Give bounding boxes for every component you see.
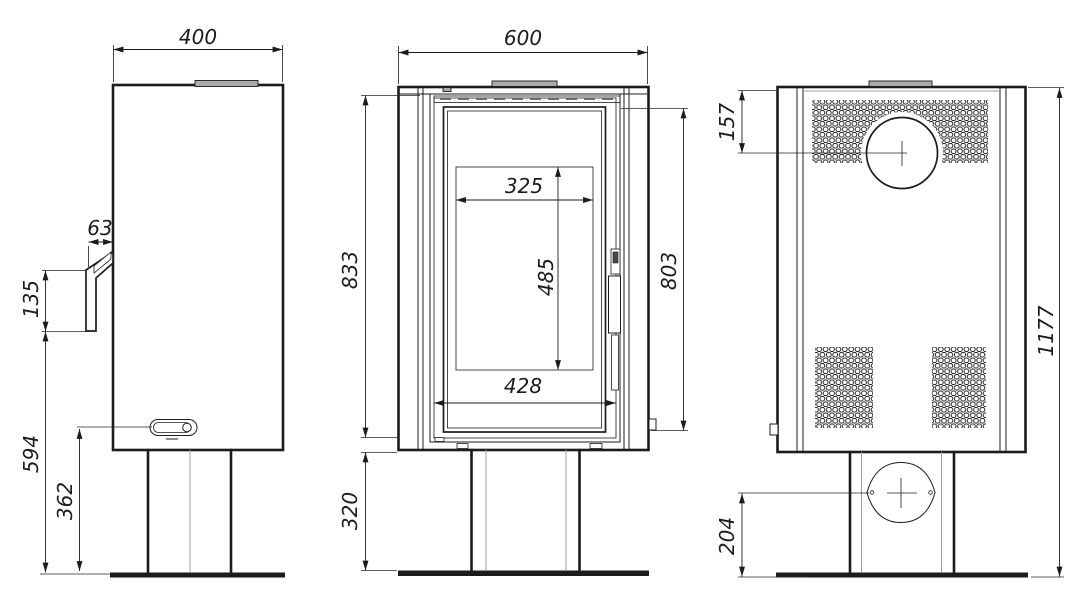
back-base-plate	[776, 573, 1028, 578]
side-top-strip	[195, 81, 258, 87]
dim-ext-lines	[42, 271, 92, 332]
front-top-strip	[492, 81, 557, 87]
stove-technical-drawing: 400 63 135 594 362	[0, 0, 1086, 605]
back-side-tab	[770, 424, 778, 435]
dim-label-top-height: 833	[338, 251, 362, 289]
dim-label-width: 600	[504, 26, 542, 50]
dim-ext-lines	[399, 46, 648, 84]
back-perforation-right	[932, 347, 986, 428]
dim-label-glass-height: 485	[534, 258, 558, 296]
dim-label-glass-width: 325	[505, 174, 543, 198]
back-perforation-left	[815, 347, 873, 428]
back-top-strip	[869, 81, 932, 87]
dim-ext-lines	[361, 453, 397, 571]
dim-label-firebox-width: 428	[504, 374, 542, 398]
dim-label-pedestal-height: 320	[338, 492, 362, 530]
drawing-canvas: 400 63 135 594 362	[0, 0, 1086, 605]
front-side-tab	[649, 419, 656, 430]
dim-ext-lines	[114, 45, 283, 82]
dim-pedestal-height: 320	[338, 453, 397, 571]
front-base-plate	[398, 571, 649, 577]
side-air-lever-knob	[183, 423, 192, 432]
front-door-handle-bar	[609, 276, 621, 333]
dim-label-total-height: 1177	[1034, 305, 1058, 356]
dim-label-handle-length: 135	[19, 280, 43, 318]
dim-label-handle-offset: 63	[87, 216, 112, 240]
back-air-inlet-hole-left	[870, 491, 874, 495]
front-door-latch-pin	[613, 252, 618, 263]
front-door-foot-right	[590, 444, 602, 449]
dim-front-width: 600	[399, 26, 648, 84]
dim-label-depth: 400	[179, 25, 217, 49]
dim-label-flue-offset: 157	[715, 103, 739, 141]
front-pedestal-columns	[472, 450, 580, 570]
dim-label-inlet-height: 204	[715, 517, 739, 555]
back-air-inlet-hole-right	[929, 491, 933, 495]
front-top-latch	[443, 88, 451, 92]
front-door-foot-small	[435, 438, 444, 442]
front-door-hinge-bar	[612, 335, 619, 390]
dim-label-door-height: 803	[657, 252, 681, 290]
dim-handle-to-floor: 594	[19, 332, 112, 575]
front-view: 600 833 803 325 485 428	[338, 26, 688, 576]
side-view: 400 63 135 594 362	[19, 25, 285, 578]
dim-total-height: 1177	[1028, 88, 1064, 578]
front-door-foot-left	[457, 444, 468, 449]
dim-handle-length: 135	[19, 271, 92, 332]
dim-label-handle-to-floor: 594	[19, 435, 43, 473]
back-view: 157 1177 204	[715, 81, 1064, 578]
dim-inlet-height: 204	[715, 493, 869, 577]
side-base-plate	[110, 573, 285, 578]
dim-side-depth: 400	[114, 25, 283, 82]
side-body-outline	[113, 85, 283, 450]
front-pedestal-inner-lines	[486, 450, 566, 570]
dim-label-lever-to-floor: 362	[53, 482, 77, 520]
